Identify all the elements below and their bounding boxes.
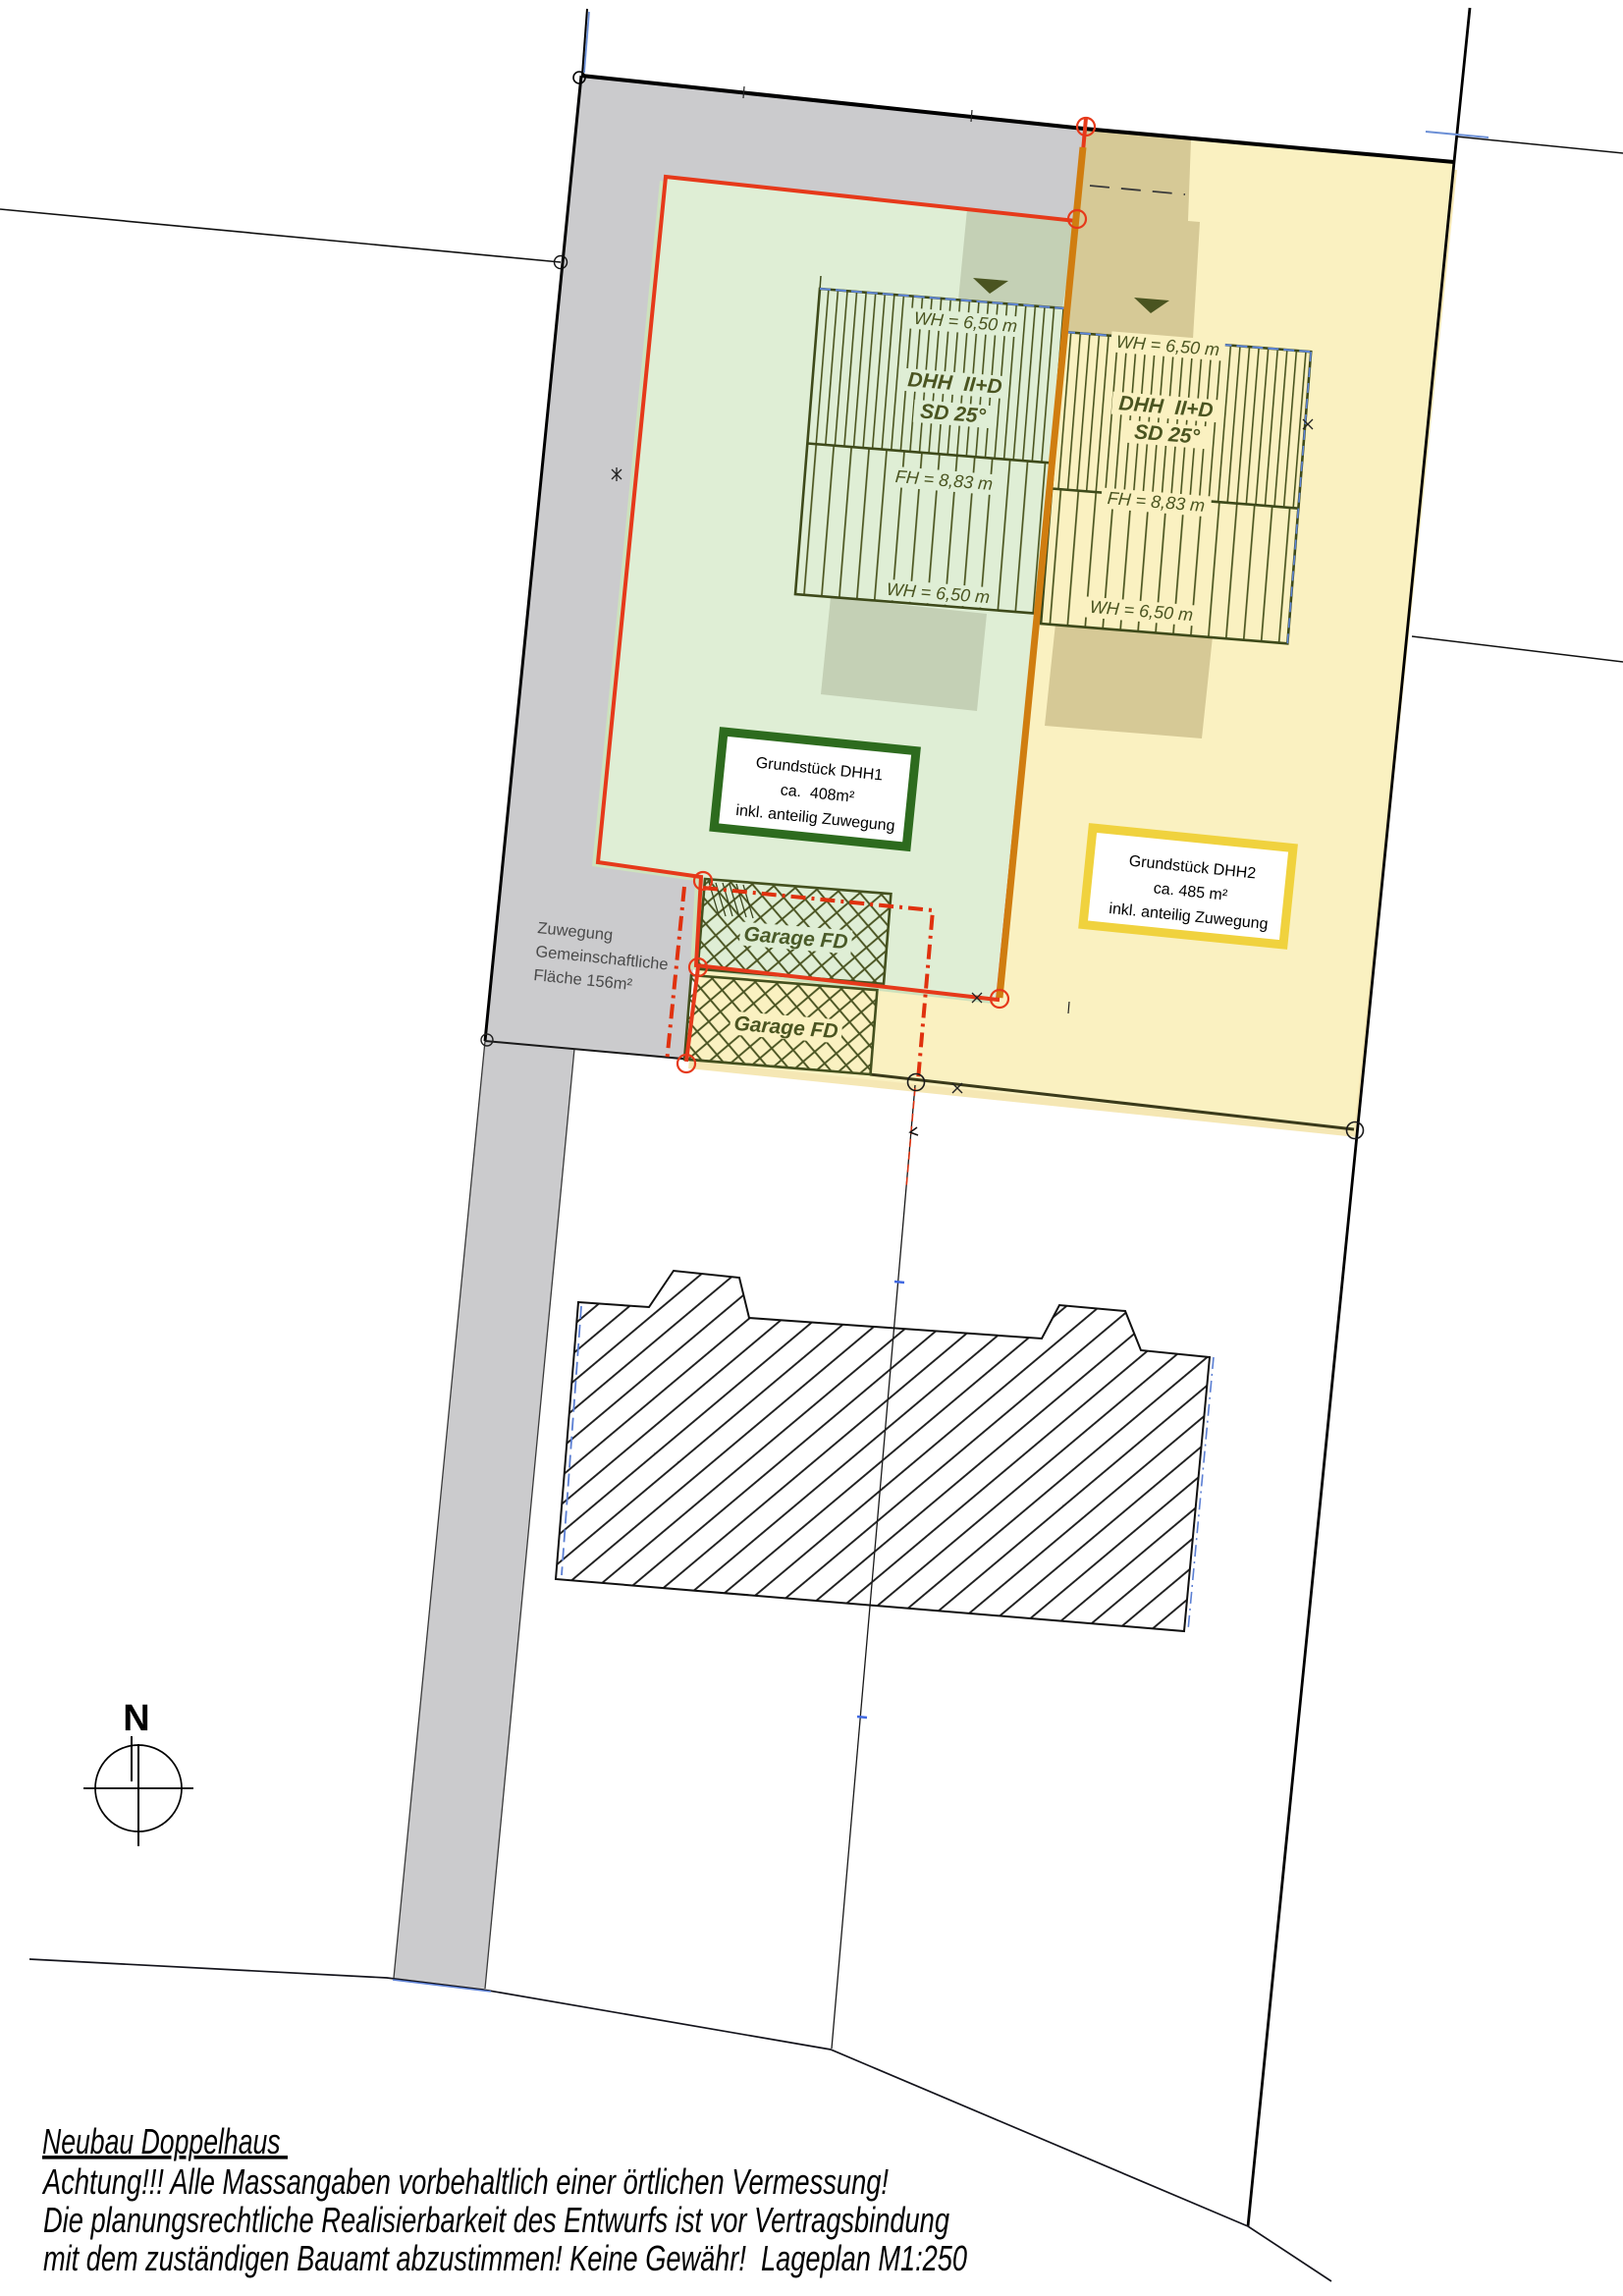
svg-text:N: N xyxy=(123,1698,149,1739)
svg-text:Achtung!!! Alle Massangaben vo: Achtung!!! Alle Massangaben vorbehaltlic… xyxy=(41,2161,889,2202)
svg-text:mit dem zuständigen Bauamt abz: mit dem zuständigen Bauamt abzustimmen! … xyxy=(43,2238,967,2278)
svg-text:Neubau Doppelhaus: Neubau Doppelhaus xyxy=(42,2121,288,2161)
svg-text:Die planungsrechtliche Realisi: Die planungsrechtliche Realisierbarkeit … xyxy=(43,2200,949,2240)
